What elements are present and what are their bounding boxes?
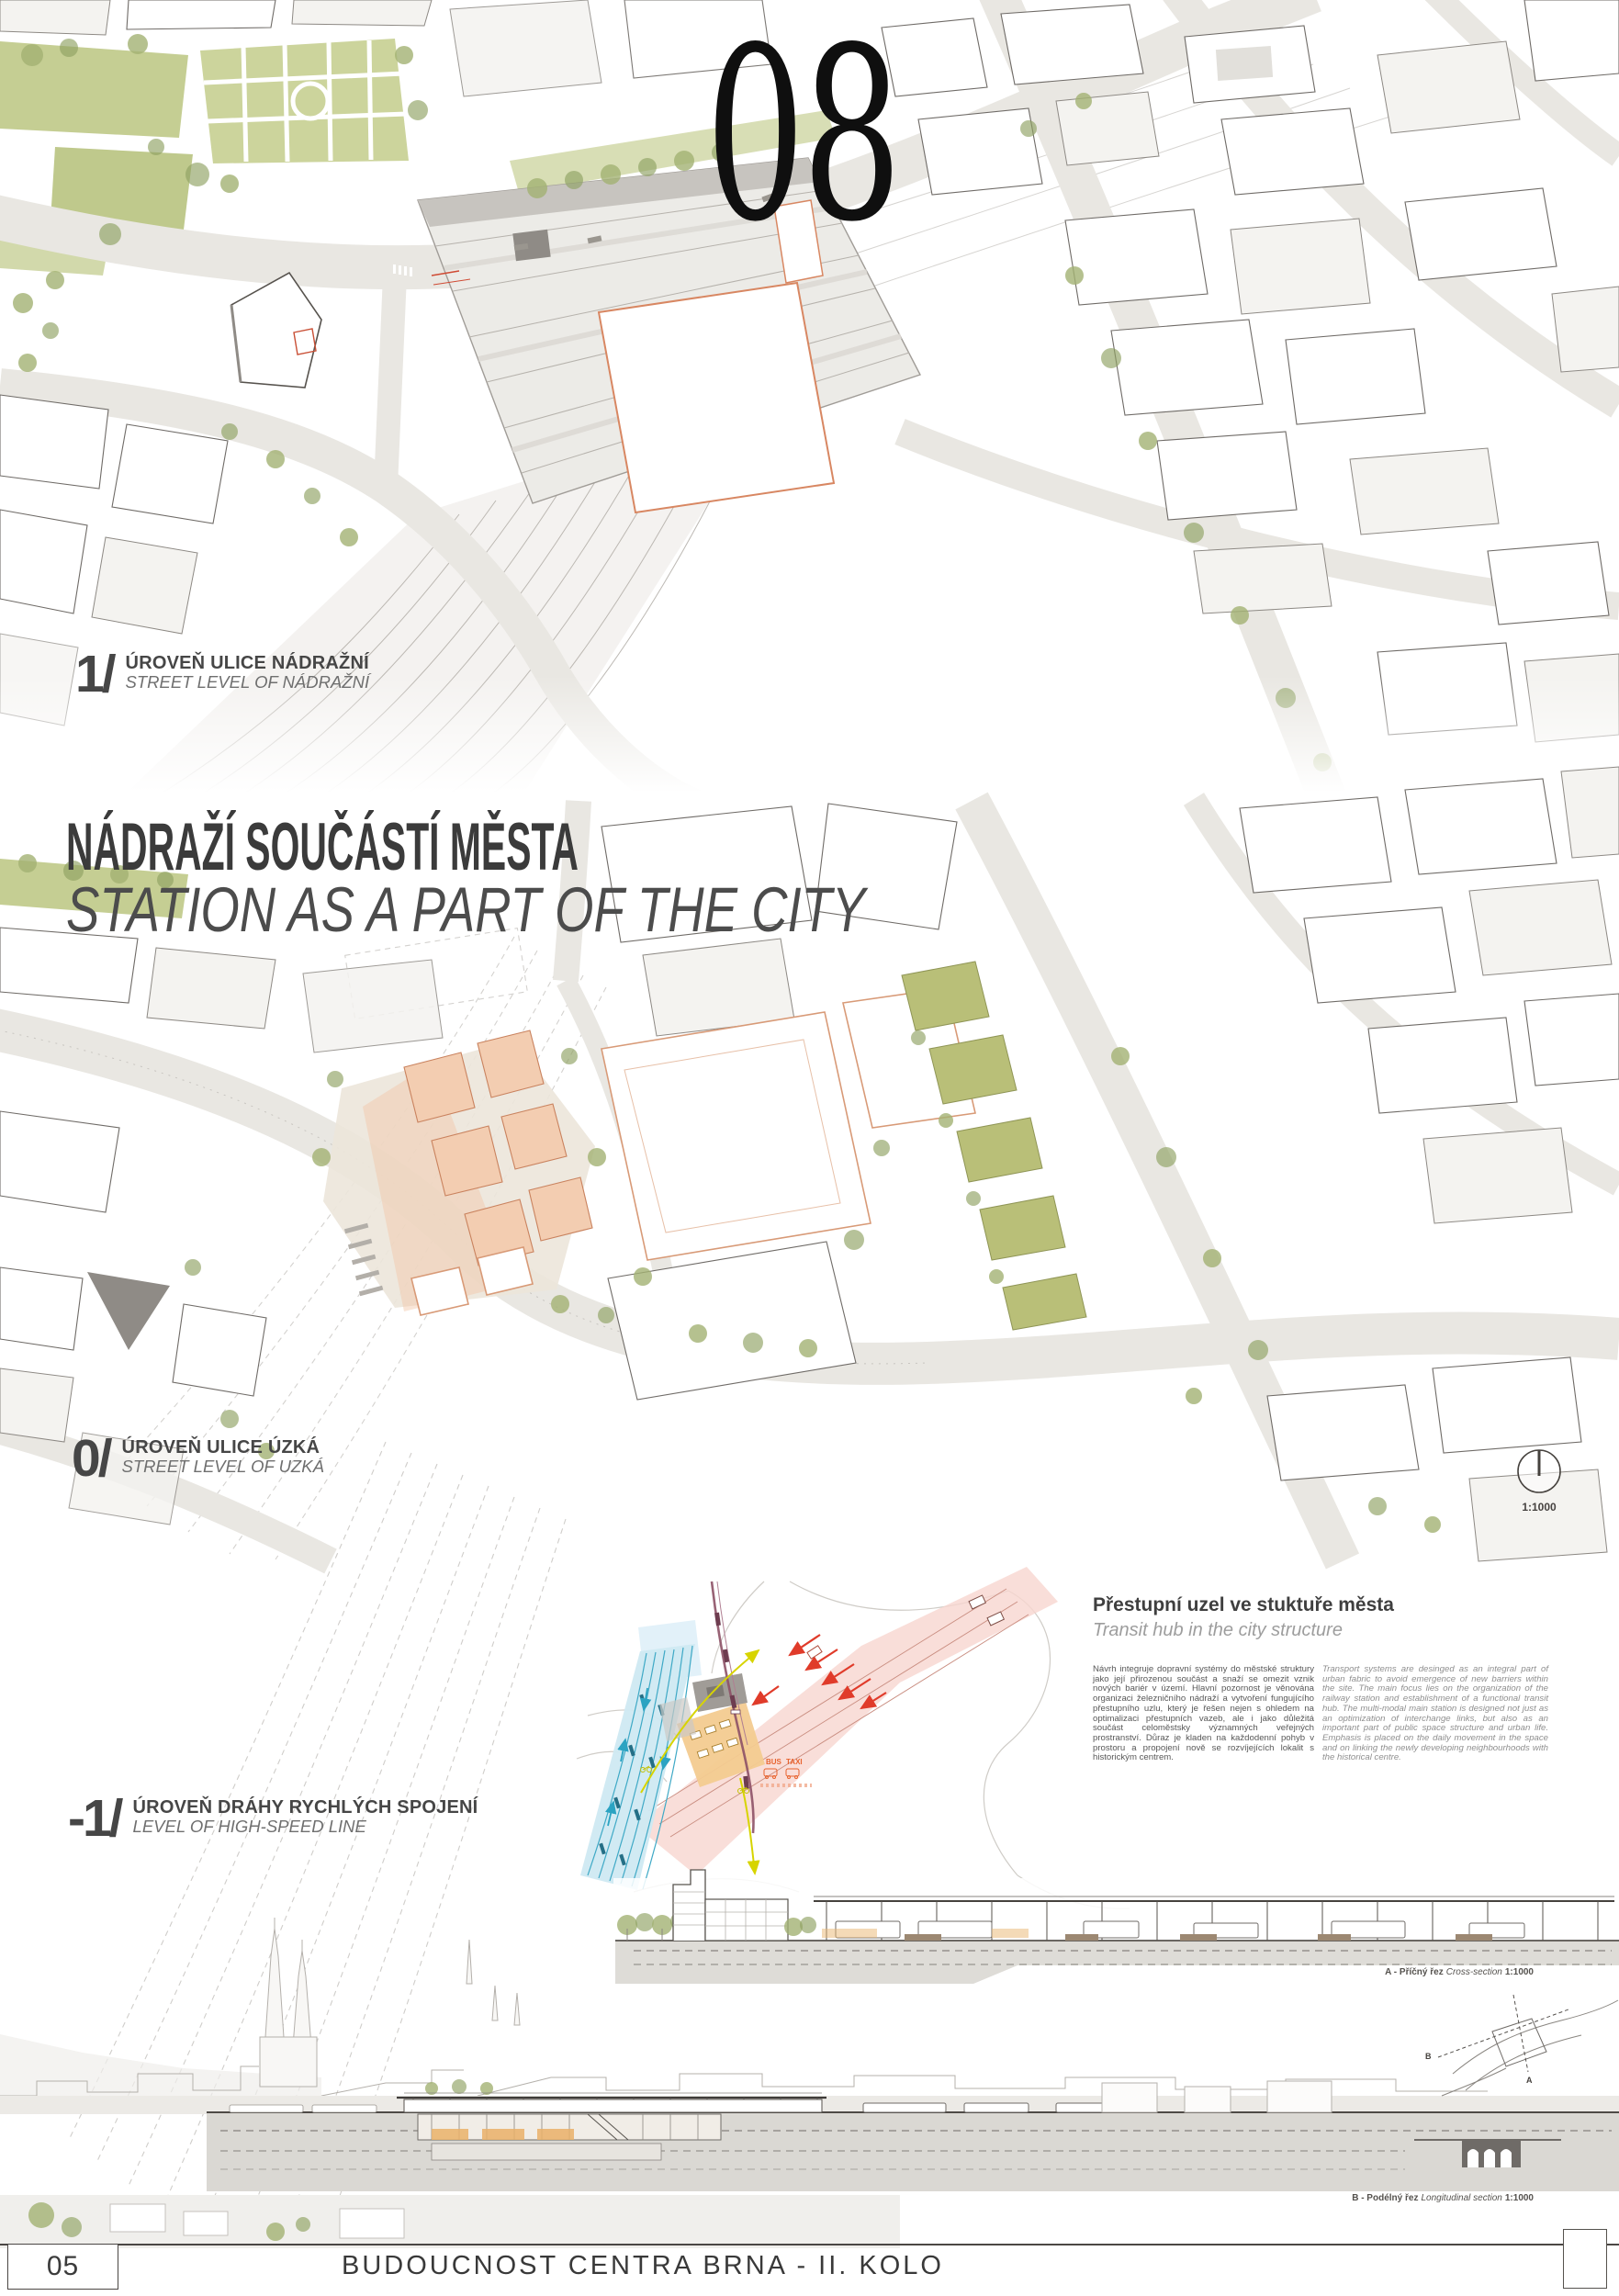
hub-heading-en: Transit hub in the city structure <box>1093 1620 1394 1641</box>
level-number: 1/ <box>75 654 114 694</box>
taxi-label: TAXI <box>786 1758 803 1766</box>
caption-b-en: Longitudinal section <box>1421 2193 1501 2203</box>
caption-a-cz: A - Příčný řez <box>1385 1967 1444 1977</box>
cathedral-silhouette <box>260 1918 317 2087</box>
level-label-1: 1/ ÚROVEŇ ULICE NÁDRAŽNÍ STREET LEVEL OF… <box>75 654 369 694</box>
main-title-cz: NÁDRAŽÍ SOUČÁSTÍ MĚSTA <box>66 814 579 881</box>
level-title-en: STREET LEVEL OF NÁDRAŽNÍ <box>126 673 370 692</box>
section-key-map: A B <box>1425 1995 1618 2096</box>
level-title-cz: ÚROVEŇ DRÁHY RYCHLÝCH SPOJENÍ <box>133 1798 478 1818</box>
poster-graphics: BUS TAXI <box>0 0 1619 2296</box>
main-title: NÁDRAŽÍ SOUČÁSTÍ MĚSTA STATION AS A PART… <box>66 814 1078 941</box>
transit-hub-diagram: BUS TAXI <box>577 1567 1130 1908</box>
level-title-cz: ÚROVEŇ ULICE ÚZKÁ <box>122 1438 324 1458</box>
caption-a-en: Cross-section <box>1446 1967 1502 1977</box>
level-number: 0/ <box>72 1438 110 1479</box>
footer-rule <box>0 2244 1619 2245</box>
key-map-label-b: B <box>1425 2052 1432 2061</box>
page-number-box: 05 <box>7 2244 118 2290</box>
page-number: 05 <box>47 2251 79 2282</box>
competition-poster: BUS TAXI <box>0 0 1619 2296</box>
caption-b-cz: B - Podélný řez <box>1352 2193 1418 2203</box>
caption-cross-section: A - Příčný řezCross-section1:1000 <box>1286 1967 1534 1977</box>
main-title-en: STATION AS A PART OF THE CITY <box>66 878 865 941</box>
bus-label: BUS <box>766 1758 782 1766</box>
map-scale: 1:1000 <box>1506 1501 1572 1514</box>
hub-paragraph-en: Transport systems are desinged as an int… <box>1322 1665 1548 1763</box>
caption-a-scale: 1:1000 <box>1505 1967 1534 1977</box>
north-arrow-icon <box>1518 1450 1560 1492</box>
level-title-en: LEVEL OF HIGH-SPEED LINE <box>133 1818 478 1836</box>
level-title-en: STREET LEVEL OF UZKÁ <box>122 1458 324 1476</box>
level-number: -1/ <box>68 1798 121 1839</box>
level-label-minus1: -1/ ÚROVEŇ DRÁHY RYCHLÝCH SPOJENÍ LEVEL … <box>68 1798 478 1839</box>
caption-b-scale: 1:1000 <box>1505 2193 1534 2203</box>
hub-paragraph-cz: Návrh integruje dopravní systémy do měst… <box>1093 1665 1314 1763</box>
footer-title: BUDOUCNOST CENTRA BRNA - II. KOLO <box>312 2251 973 2281</box>
transit-hub-heading: Přestupní uzel ve stuktuře města Transit… <box>1093 1594 1394 1641</box>
sheet-number: 08 <box>705 17 898 255</box>
key-map-label-a: A <box>1526 2076 1533 2085</box>
footer-right-box <box>1563 2229 1607 2289</box>
hub-heading-cz: Přestupní uzel ve stuktuře města <box>1093 1594 1394 1616</box>
level-title-cz: ÚROVEŇ ULICE NÁDRAŽNÍ <box>126 654 370 673</box>
level-label-0: 0/ ÚROVEŇ ULICE ÚZKÁ STREET LEVEL OF UZK… <box>72 1438 324 1479</box>
caption-longitudinal-section: B - Podélný řezLongitudinal section1:100… <box>1286 2193 1534 2203</box>
